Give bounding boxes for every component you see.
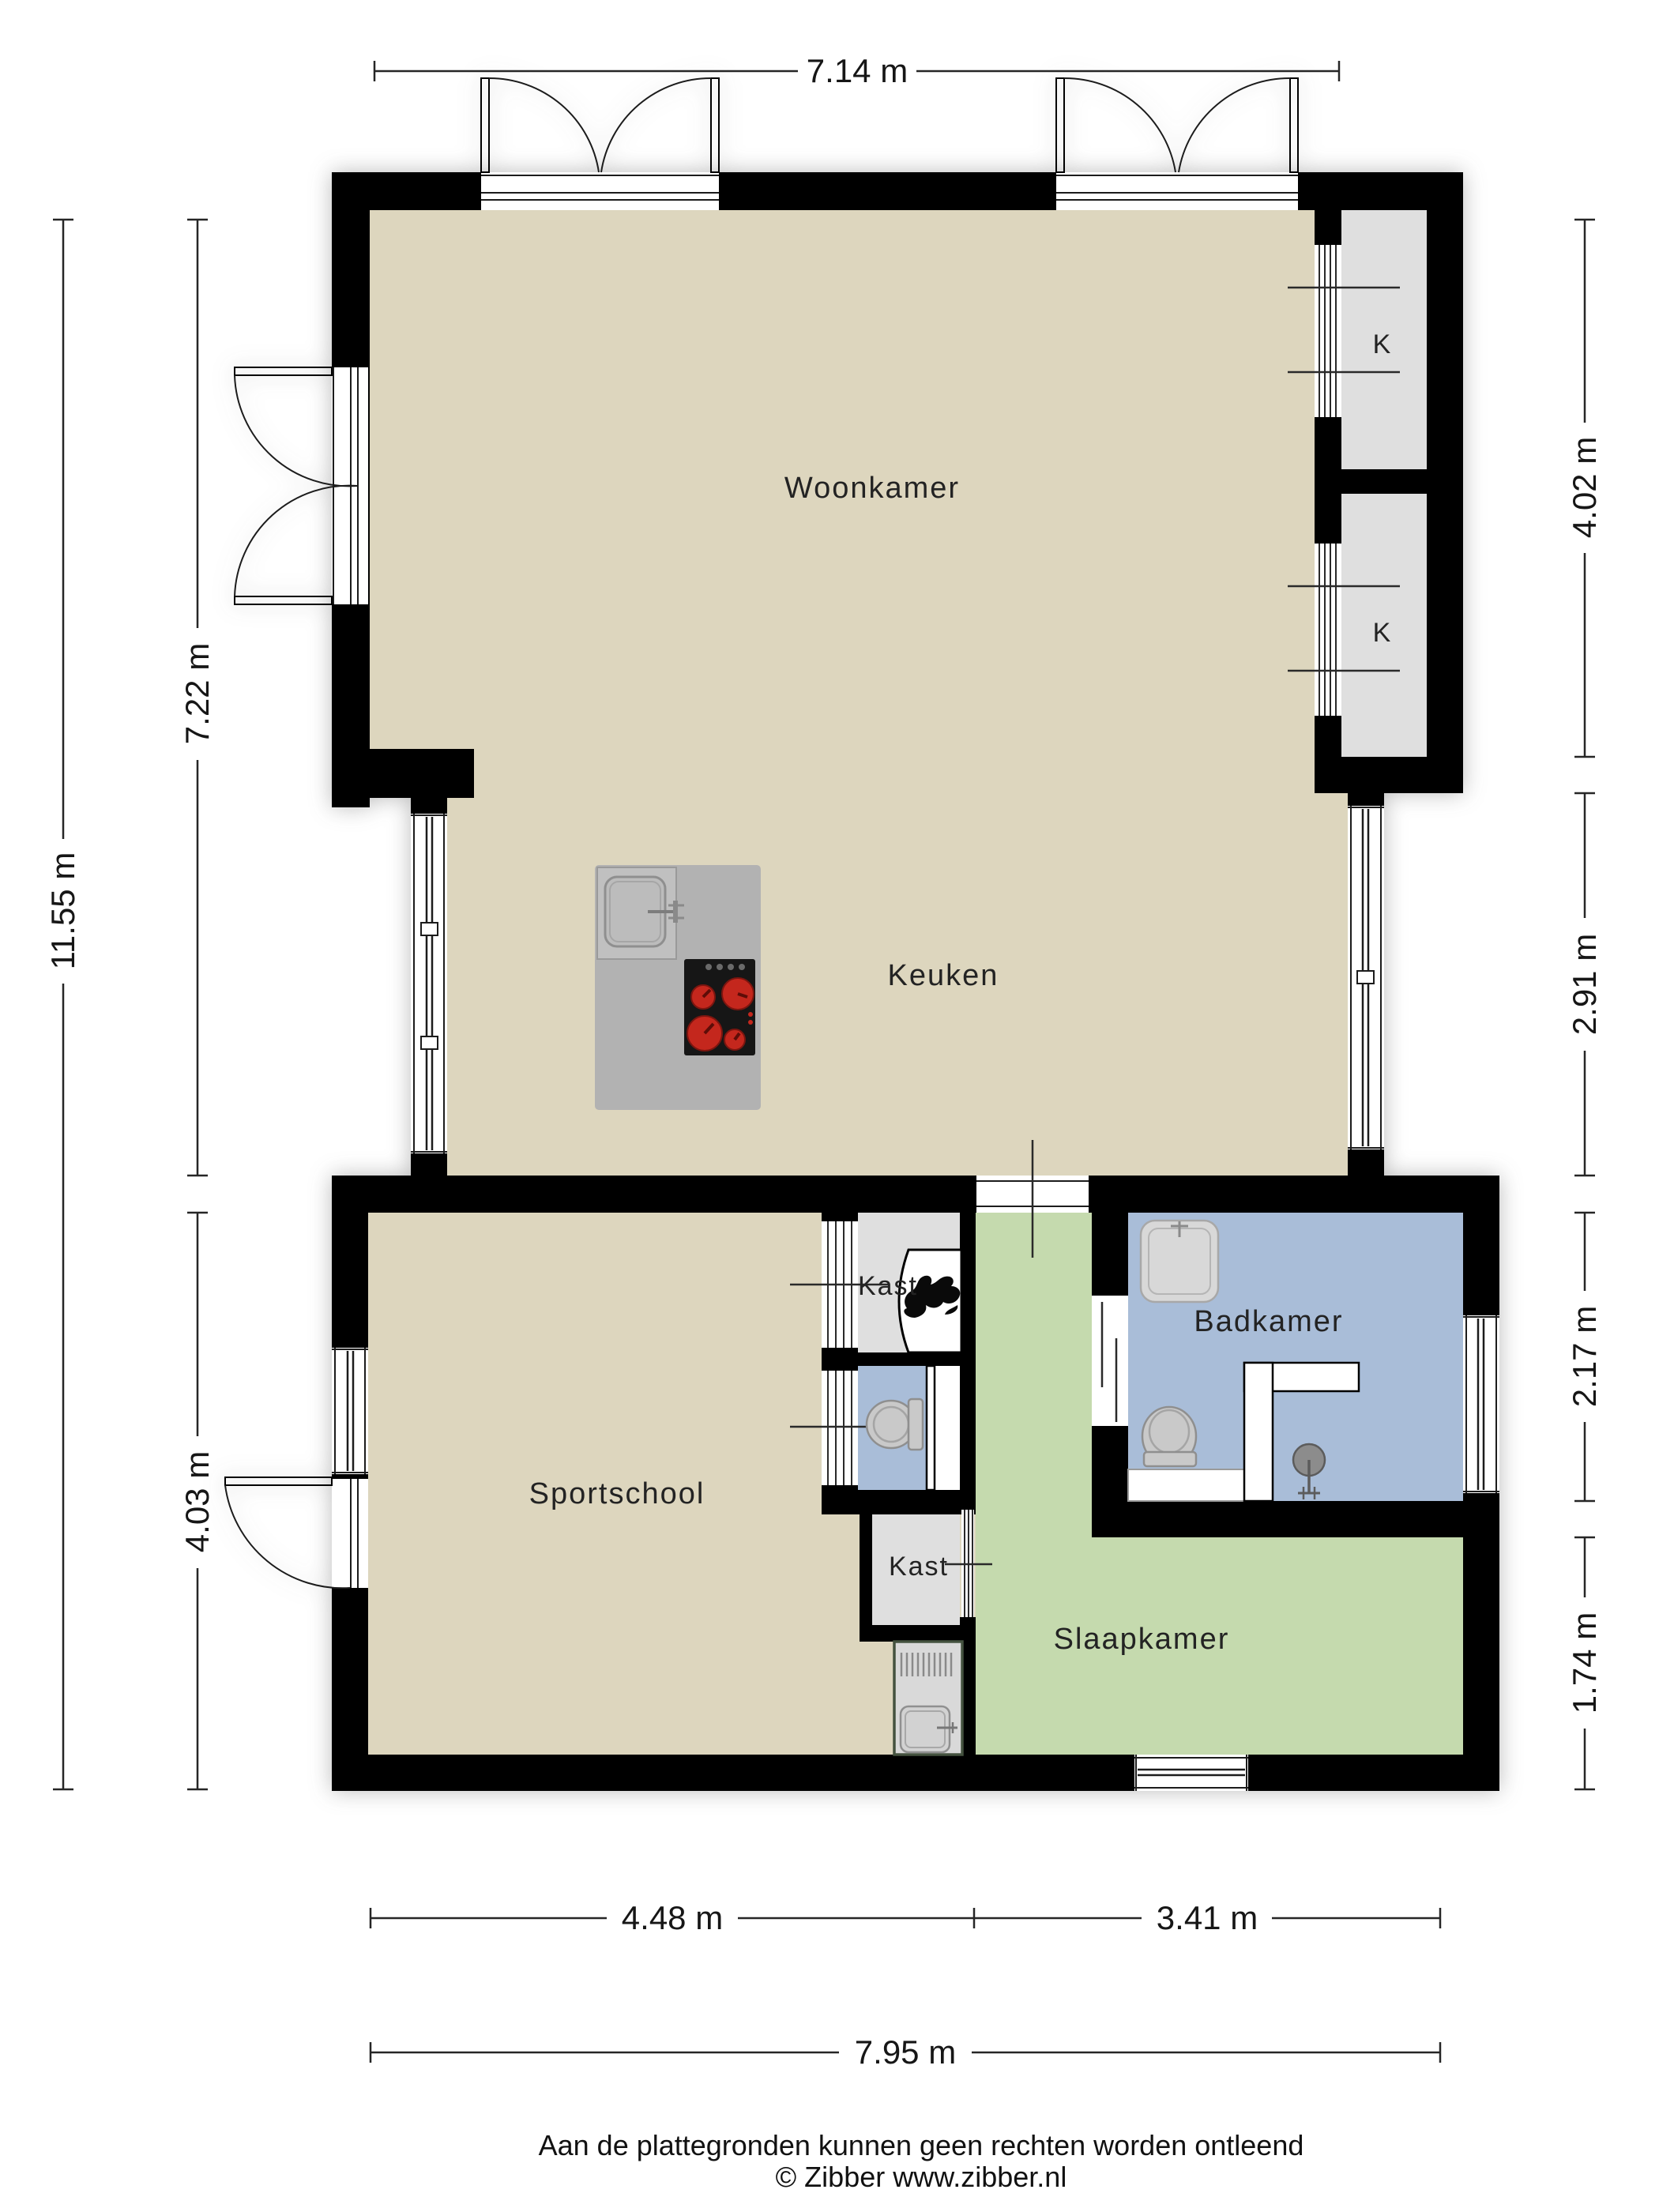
window-badkamer-right: [1463, 1315, 1499, 1493]
window-keuken-left: [411, 814, 447, 1153]
sliding-door-badkamer: [1092, 1296, 1128, 1426]
sink-icon: [597, 867, 684, 959]
door-wc: [927, 1366, 935, 1490]
closet-k2-floor: [1341, 494, 1427, 757]
floorplan-page: Woonkamer Keuken Sportschool Slaapkamer …: [0, 0, 1659, 2212]
window-slaapkamer-bottom: [1134, 1755, 1248, 1791]
woonkamer-keuken-floor: [368, 210, 1348, 1176]
utility-sink-icon: [894, 1642, 962, 1755]
french-door-left: [235, 367, 368, 604]
closet-k1-floor: [1341, 210, 1427, 469]
french-door-top-right: [1056, 78, 1298, 210]
toilet-icon: [1142, 1407, 1196, 1466]
window-sportschool-left: [332, 1348, 368, 1474]
bathroom-cabinet: [1128, 1469, 1245, 1501]
kitchen-island: [595, 865, 761, 1110]
washbasin-icon: [1141, 1221, 1218, 1302]
entry-door-sportschool: [225, 1477, 368, 1588]
window-keuken-right: [1348, 806, 1384, 1149]
floorplan-drawing: [0, 0, 1659, 2212]
toilet-icon: [867, 1399, 923, 1450]
cooktop-icon: [684, 959, 755, 1055]
french-door-top-left: [481, 78, 719, 210]
kast-lower-floor: [872, 1514, 960, 1625]
